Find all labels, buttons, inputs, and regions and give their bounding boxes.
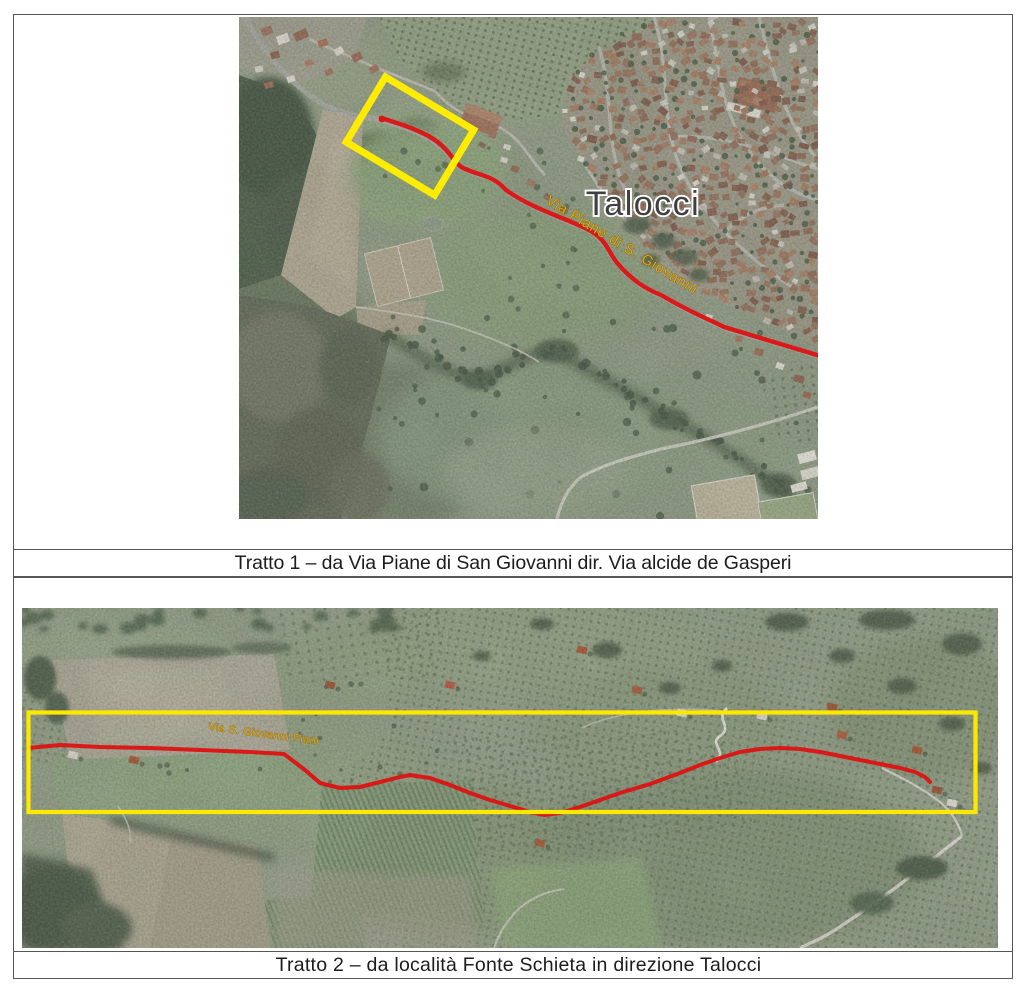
svg-text:Talocci: Talocci [586,185,700,223]
